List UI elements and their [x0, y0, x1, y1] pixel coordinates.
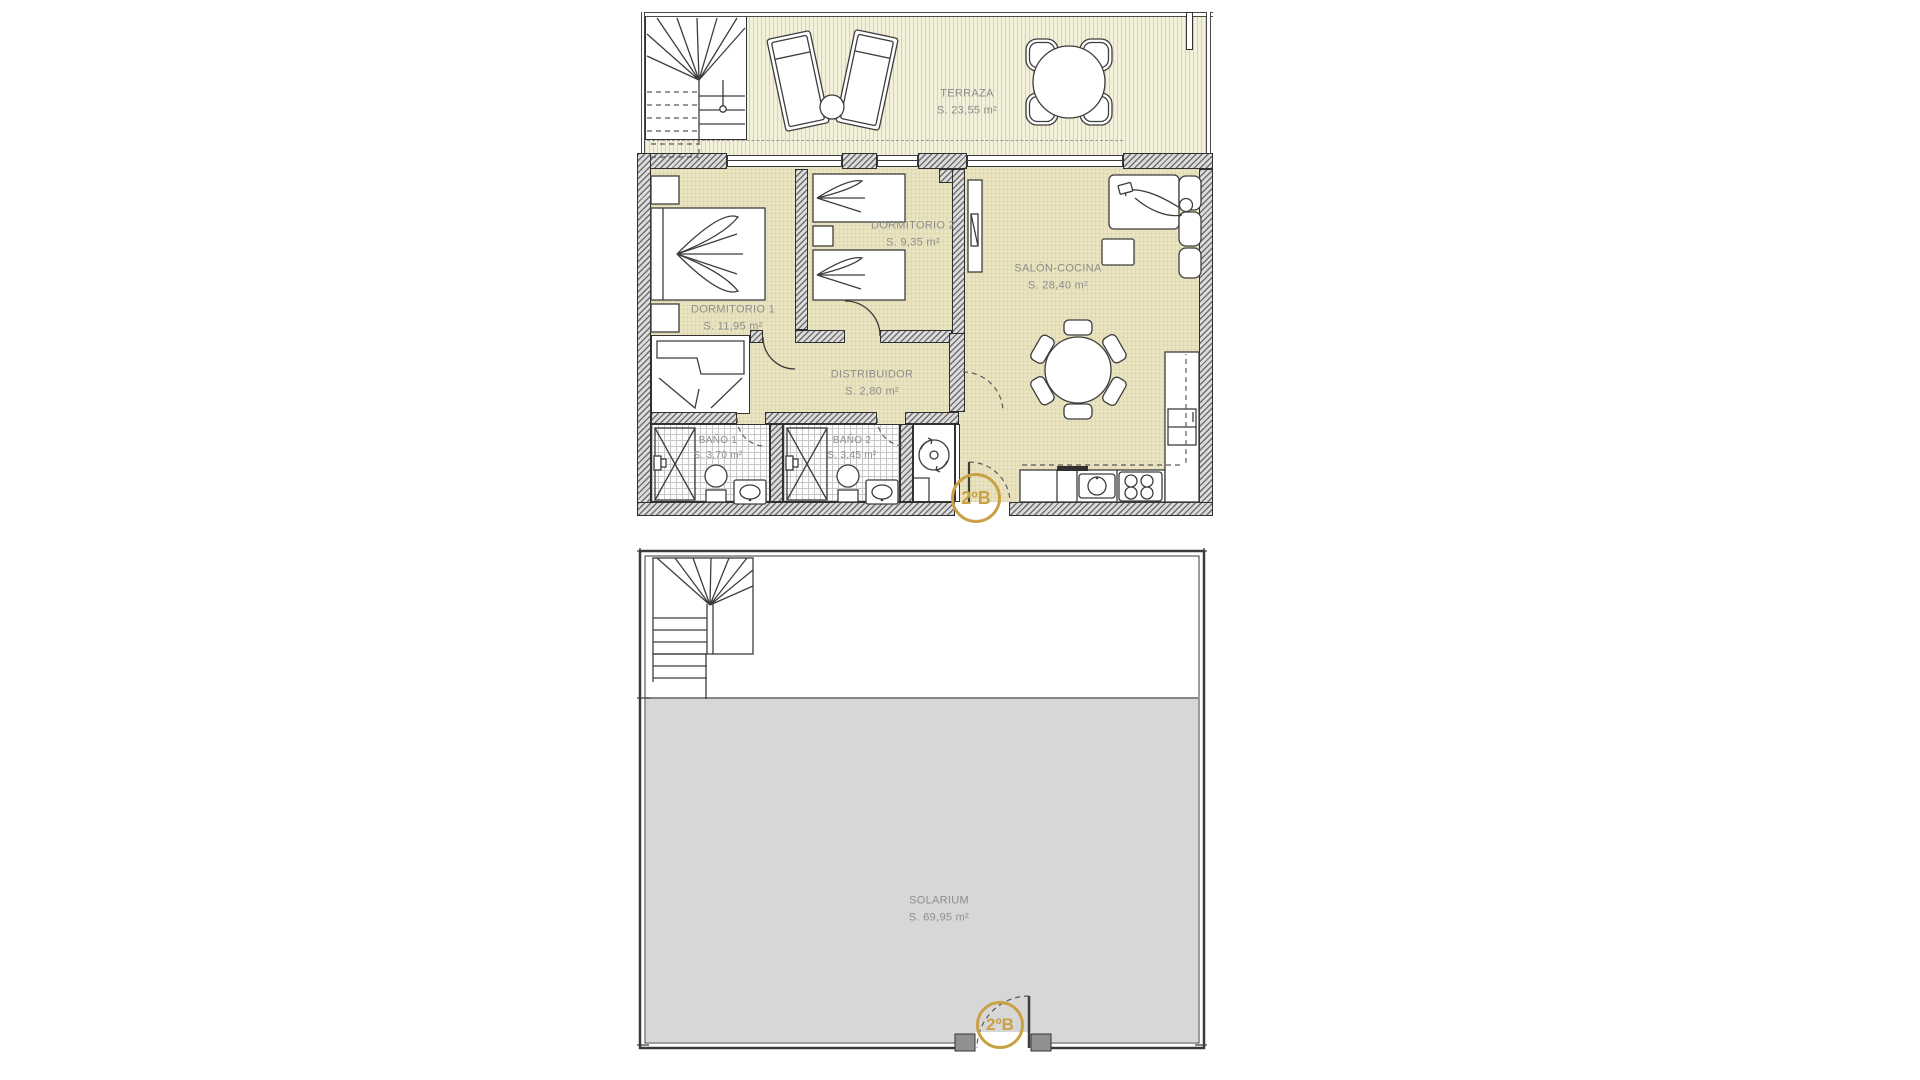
- washer-icon: [913, 438, 949, 502]
- sink-icon: [734, 480, 766, 504]
- sun-lounger-icon: [836, 29, 899, 130]
- toilet-icon: [705, 465, 727, 502]
- hob-icon: [1119, 472, 1162, 501]
- shower-icon: [786, 428, 827, 500]
- sun-lounger-icon: [767, 30, 830, 131]
- lower-plan-drawing: [637, 548, 1207, 1054]
- fridge-icon: [1168, 409, 1196, 445]
- room-label-dormitorio2: DORMITORIO 2 S. 9,35 m²: [871, 218, 955, 251]
- room-label-dormitorio1: DORMITORIO 1 S. 11,95 m²: [691, 302, 775, 335]
- unit-badge: 2ºB: [976, 1001, 1024, 1049]
- tv-console-icon: [968, 180, 982, 272]
- room-label-distribuidor: DISTRIBUIDOR S. 2,80 m²: [831, 367, 913, 400]
- room-label-bano1: BAÑO 1 S. 3,70 m²: [693, 433, 742, 463]
- unit-badge: 2ºB: [951, 473, 1001, 523]
- door-arc: [737, 301, 1010, 503]
- sink-icon: [866, 480, 898, 504]
- sink-icon: [1079, 474, 1115, 498]
- room-label-solarium: SOLARIUM S. 69,95 m²: [909, 893, 969, 926]
- room-label-salon-cocina: SALÓN-COCINA S. 28,40 m²: [1014, 261, 1101, 294]
- room-label-bano2: BAÑO 2 S. 3,45 m²: [827, 433, 876, 463]
- stairs-icon: [647, 18, 745, 160]
- toilet-icon: [837, 465, 859, 502]
- solarium-floor: [646, 699, 1198, 1042]
- side-table-icon: [820, 95, 844, 119]
- coffee-table-icon: [1102, 239, 1134, 265]
- dining-table-icon: [1029, 320, 1128, 419]
- lower-floor-plan: SOLARIUM S. 69,95 m² 2ºB: [637, 548, 1207, 1054]
- terrace-table-icon: [1026, 39, 1112, 125]
- shower-icon: [654, 428, 695, 500]
- stairs-icon: [653, 558, 753, 699]
- room-label-terraza: TERRAZA S. 23,55 m²: [937, 86, 997, 119]
- wardrobe-icon: [657, 341, 744, 408]
- upper-floor-plan: TERRAZA S. 23,55 m² DORMITORIO 1 S. 11,9…: [637, 12, 1213, 516]
